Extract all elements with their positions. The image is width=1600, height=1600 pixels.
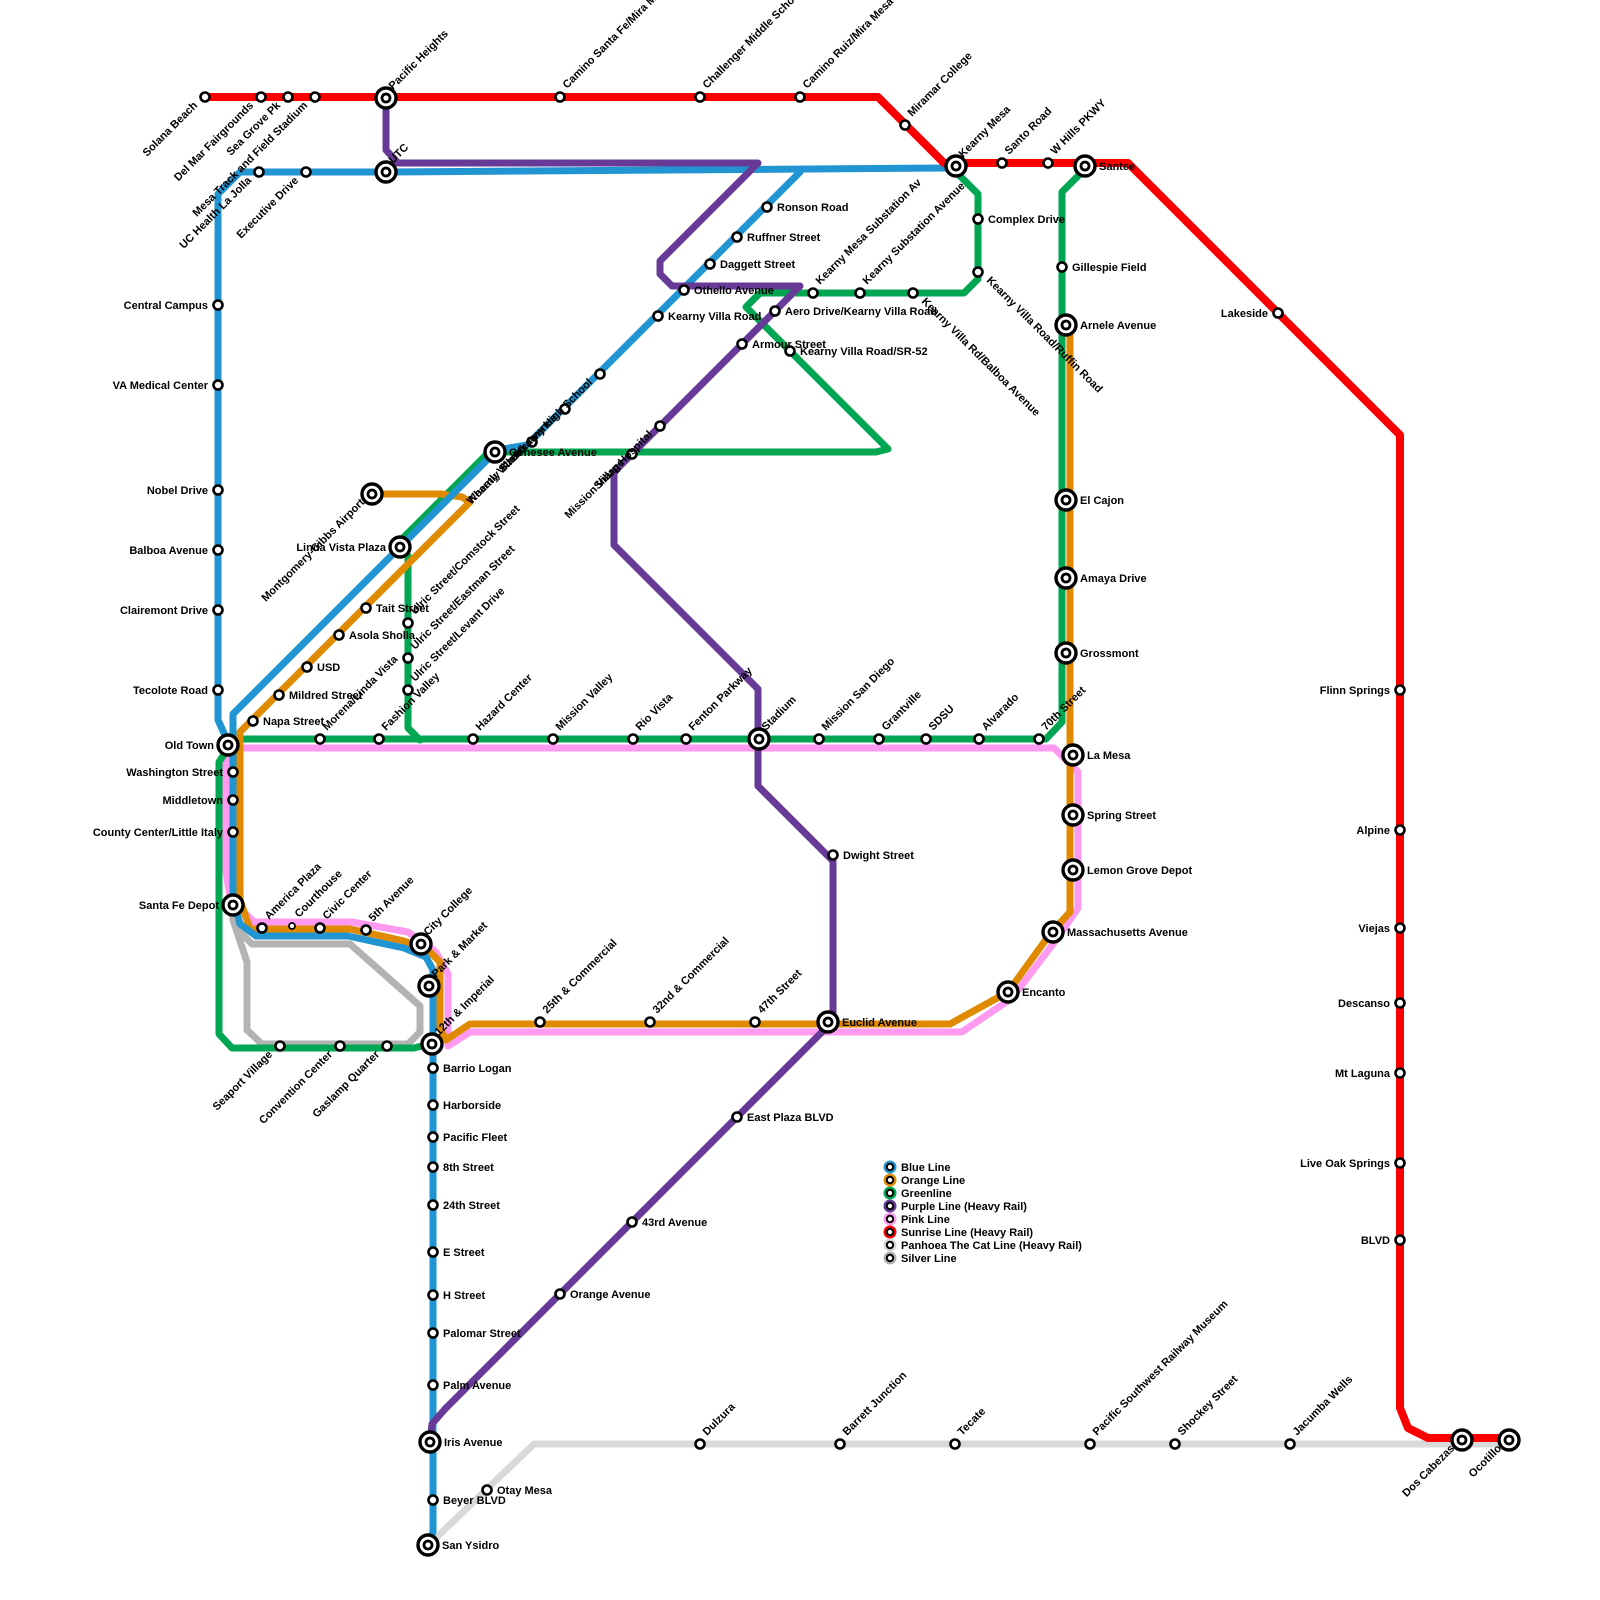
- station-marker-icon[interactable]: [738, 340, 747, 349]
- interchange-core-icon: [428, 1040, 436, 1048]
- station-marker-icon[interactable]: [429, 1133, 438, 1142]
- station-marker-icon[interactable]: [429, 1291, 438, 1300]
- station-47th-street[interactable]: [751, 1018, 760, 1027]
- station-nobel-drive[interactable]: [214, 486, 223, 495]
- station-marker-icon[interactable]: [829, 851, 838, 860]
- station-8th-street[interactable]: [429, 1163, 438, 1172]
- station-marker-icon[interactable]: [249, 717, 258, 726]
- station-marker-icon[interactable]: [201, 93, 210, 102]
- interchange-core-icon: [1458, 1436, 1466, 1444]
- station-marker-icon[interactable]: [922, 735, 931, 744]
- station-el-cajon[interactable]: [1056, 490, 1076, 510]
- station-label-h-street: H Street: [443, 1290, 486, 1302]
- station-marker-icon[interactable]: [429, 1163, 438, 1172]
- station-marker-icon[interactable]: [1396, 999, 1405, 1008]
- station-marker-icon[interactable]: [654, 312, 663, 321]
- station-central-campus[interactable]: [214, 301, 223, 310]
- station-middletown[interactable]: [229, 796, 238, 805]
- station-label-usd: USD: [317, 662, 340, 674]
- station-label-complex-drive: Complex Drive: [988, 214, 1065, 226]
- station-70th-street[interactable]: [1035, 735, 1044, 744]
- station-marker-icon[interactable]: [556, 1290, 565, 1299]
- station-marker-icon[interactable]: [751, 1018, 760, 1027]
- station-marker-icon[interactable]: [1035, 735, 1044, 744]
- station-label-challenger-middle-school: Challenger Middle School: [701, 0, 805, 91]
- station-label-lakeside: Lakeside: [1221, 308, 1268, 320]
- station-kearny-substation-avenue[interactable]: [856, 289, 865, 298]
- legend-label: Panhoea The Cat Line (Heavy Rail): [901, 1240, 1082, 1252]
- station-kearny-mesa-substation-av[interactable]: [809, 289, 818, 298]
- station-harborside[interactable]: [429, 1101, 438, 1110]
- legend-label: Orange Line: [901, 1175, 965, 1187]
- station-label-san-ysidro: San Ysidro: [442, 1540, 500, 1552]
- station-marker-icon[interactable]: [229, 796, 238, 805]
- station-marker-icon[interactable]: [1396, 1159, 1405, 1168]
- station-marker-icon[interactable]: [875, 735, 884, 744]
- station-lemon-grove-depot[interactable]: [1063, 860, 1083, 880]
- interchange-core-icon: [424, 1541, 432, 1549]
- station-marker-icon[interactable]: [596, 370, 605, 379]
- station-ruffner-street[interactable]: [733, 233, 742, 242]
- station-label-e-street: E Street: [443, 1247, 485, 1259]
- station-descanso[interactable]: [1396, 999, 1405, 1008]
- station-label-asola-sholla: Asola Sholla: [349, 630, 416, 642]
- station-marker-icon[interactable]: [257, 93, 266, 102]
- station-santee[interactable]: [1075, 156, 1095, 176]
- station-camino-santa-fe-mira-mesa-blvd[interactable]: [556, 93, 565, 102]
- station-mt-laguna[interactable]: [1396, 1069, 1405, 1078]
- green-line-main: [228, 172, 1082, 745]
- station-label-fenton-parkway: Fenton Parkway: [687, 664, 756, 733]
- station-marker-icon[interactable]: [362, 604, 371, 613]
- station-label-live-oak-springs: Live Oak Springs: [1300, 1158, 1390, 1170]
- station-marker-icon[interactable]: [429, 1248, 438, 1257]
- station-challenger-middle-school[interactable]: [696, 93, 705, 102]
- legend-item-blue-line: Blue Line: [884, 1161, 951, 1175]
- station-camino-ruiz-mira-mesa-blvd[interactable]: [796, 93, 805, 102]
- legend-station-icon: [887, 1203, 893, 1209]
- legend-station-icon: [887, 1177, 893, 1183]
- station-label-amaya-drive: Amaya Drive: [1080, 573, 1147, 585]
- station-washington-street[interactable]: [229, 768, 238, 777]
- station-marker-icon[interactable]: [656, 422, 665, 431]
- interchange-core-icon: [1062, 574, 1070, 582]
- interchange-core-icon: [1069, 751, 1077, 759]
- station-marker-icon[interactable]: [258, 924, 267, 933]
- station-mission-valley[interactable]: [549, 735, 558, 744]
- station-sea-grove-pk[interactable]: [284, 93, 293, 102]
- legend-label: Blue Line: [901, 1162, 951, 1174]
- station-amaya-drive[interactable]: [1056, 568, 1076, 588]
- station-kearny-villa-kearny-high-school[interactable]: [596, 370, 605, 379]
- station-morena-linda-vista[interactable]: [316, 735, 325, 744]
- station-daggett-street[interactable]: [706, 260, 715, 269]
- station-marker-icon[interactable]: [556, 93, 565, 102]
- station-marker-icon[interactable]: [646, 1018, 655, 1027]
- station-marker-icon[interactable]: [404, 654, 413, 663]
- station-e-street[interactable]: [429, 1248, 438, 1257]
- station-marker-icon[interactable]: [951, 1440, 960, 1449]
- station-marker-icon[interactable]: [214, 486, 223, 495]
- station-label-palomar-street: Palomar Street: [443, 1328, 521, 1340]
- station-blvd[interactable]: [1396, 1236, 1405, 1245]
- station-marker-icon[interactable]: [214, 301, 223, 310]
- station-marker-icon[interactable]: [1396, 826, 1405, 835]
- station-gillespie-field[interactable]: [1058, 263, 1067, 272]
- interchange-core-icon: [224, 741, 232, 749]
- station-label-32nd-commercial: 32nd & Commercial: [651, 935, 732, 1016]
- station-marker-icon[interactable]: [214, 606, 223, 615]
- station-genesee-avenue[interactable]: [485, 442, 505, 462]
- station-kearny-villa-road[interactable]: [654, 312, 663, 321]
- station-marker-icon[interactable]: [255, 168, 264, 177]
- interchange-core-icon: [425, 982, 433, 990]
- station-dos-cabezas[interactable]: [1452, 1430, 1472, 1450]
- station-w-hills-pkwy[interactable]: [1044, 159, 1053, 168]
- station-la-mesa[interactable]: [1063, 745, 1083, 765]
- station-santo-road[interactable]: [998, 159, 1007, 168]
- interchange-core-icon: [824, 1018, 832, 1026]
- station-marker-icon[interactable]: [316, 924, 325, 933]
- station-label-city-college: City College: [422, 885, 475, 938]
- station-balboa-avenue[interactable]: [214, 546, 223, 555]
- station-america-plaza[interactable]: [258, 924, 267, 933]
- station-barrett-junction[interactable]: [836, 1440, 845, 1449]
- station-marker-icon[interactable]: [909, 289, 918, 298]
- station-marker-icon[interactable]: [316, 735, 325, 744]
- station-label-mt-laguna: Mt Laguna: [1335, 1068, 1391, 1080]
- station-marker-icon[interactable]: [536, 1018, 545, 1027]
- station-label-santa-fe-depot: Santa Fe Depot: [139, 900, 219, 912]
- station-pacific-southwest-railway-museum[interactable]: [1086, 1440, 1095, 1449]
- station-tecolote-road[interactable]: [214, 686, 223, 695]
- station-marker-icon[interactable]: [771, 307, 780, 316]
- blue-line-south: [233, 745, 433, 1545]
- station-marker-icon[interactable]: [311, 93, 320, 102]
- interchange-core-icon: [1049, 928, 1057, 936]
- station-marker-icon[interactable]: [362, 926, 371, 935]
- station-label-stadium: Stadium: [760, 694, 799, 733]
- station-marker-icon[interactable]: [998, 159, 1007, 168]
- station-marker-icon[interactable]: [275, 691, 284, 700]
- station-marker-icon[interactable]: [429, 1496, 438, 1505]
- station-ulric-street-comstock-street[interactable]: [404, 619, 413, 628]
- station-label-mission-valley: Mission Valley: [554, 671, 616, 733]
- station-marker-icon[interactable]: [284, 93, 293, 102]
- station-convention-center[interactable]: [336, 1042, 345, 1051]
- station-fashion-valley[interactable]: [375, 735, 384, 744]
- station-marker-icon[interactable]: [214, 381, 223, 390]
- station-usd[interactable]: [303, 663, 312, 672]
- station-hazard-center[interactable]: [469, 735, 478, 744]
- station-mildred-street[interactable]: [275, 691, 284, 700]
- station-marker-icon[interactable]: [975, 735, 984, 744]
- station-shockey-street[interactable]: [1171, 1440, 1180, 1449]
- station-euclid-avenue[interactable]: [818, 1012, 838, 1032]
- interchange-core-icon: [426, 1438, 434, 1446]
- interchange-core-icon: [1062, 649, 1070, 657]
- station-label-viejas: Viejas: [1358, 923, 1390, 935]
- station-mesa-track-and-field-stadium[interactable]: [311, 93, 320, 102]
- station-label-pacific-southwest-railway-museum: Pacific Southwest Railway Museum: [1091, 1298, 1231, 1438]
- station-marker-icon[interactable]: [1286, 1440, 1295, 1449]
- station-viejas[interactable]: [1396, 924, 1405, 933]
- station-old-town[interactable]: [218, 735, 238, 755]
- station-kearny-villa-rd-balboa-avenue[interactable]: [909, 289, 918, 298]
- station-labels-layer: Solana BeachDel Mar FairgroundsSea Grove…: [93, 0, 1505, 1552]
- station-marker-icon[interactable]: [383, 1042, 392, 1051]
- station-label-camino-santa-fe-mira-mesa-blvd: Camino Santa Fe/Mira Mesa BLVD: [561, 0, 695, 91]
- station-label-el-cajon: El Cajon: [1080, 495, 1124, 507]
- station-marker-icon[interactable]: [229, 828, 238, 837]
- station-marker-icon[interactable]: [763, 203, 772, 212]
- station-label-otay-mesa: Otay Mesa: [497, 1485, 553, 1497]
- station-fenton-parkway[interactable]: [682, 735, 691, 744]
- station-sdsu[interactable]: [922, 735, 931, 744]
- station-marker-icon[interactable]: [1396, 686, 1405, 695]
- station-montgomery-gibbs-airport[interactable]: [362, 484, 382, 504]
- station-complex-drive[interactable]: [974, 215, 983, 224]
- station-executive-drive[interactable]: [302, 168, 311, 177]
- legend-label: Purple Line (Heavy Rail): [901, 1201, 1027, 1213]
- station-othello-avenue[interactable]: [680, 286, 689, 295]
- station-marker-icon[interactable]: [276, 1042, 285, 1051]
- station-marker-icon[interactable]: [214, 686, 223, 695]
- station-alvarado[interactable]: [975, 735, 984, 744]
- station-beyer-blvd[interactable]: [429, 1496, 438, 1505]
- station-marker-icon[interactable]: [696, 93, 705, 102]
- interchange-core-icon: [1505, 1436, 1513, 1444]
- station-civic-center[interactable]: [316, 924, 325, 933]
- station-marker-icon[interactable]: [335, 631, 344, 640]
- station-marker-icon[interactable]: [856, 289, 865, 298]
- station-marker-icon[interactable]: [974, 215, 983, 224]
- station-label-county-center-little-italy: County Center/Little Italy: [93, 827, 224, 839]
- legend-station-icon: [887, 1229, 893, 1235]
- interchange-core-icon: [382, 168, 390, 176]
- station-linda-vista-plaza[interactable]: [390, 537, 410, 557]
- station-marker-icon[interactable]: [809, 289, 818, 298]
- minor-station-marker-icon[interactable]: [289, 923, 295, 929]
- station-label-solana-beach: Solana Beach: [141, 99, 201, 159]
- station-gaslamp-quarter[interactable]: [383, 1042, 392, 1051]
- station-label-24th-street: 24th Street: [443, 1200, 500, 1212]
- station-alpine[interactable]: [1396, 826, 1405, 835]
- station-label-alvarado: Alvarado: [980, 691, 1022, 733]
- station-barrio-logan[interactable]: [429, 1064, 438, 1073]
- station-va-medical-center[interactable]: [214, 381, 223, 390]
- station-marker-icon[interactable]: [796, 93, 805, 102]
- station-label-old-town: Old Town: [165, 740, 215, 752]
- station-tecate[interactable]: [951, 1440, 960, 1449]
- station-marker-icon[interactable]: [706, 260, 715, 269]
- station-label-kearny-villa-road: Kearny Villa Road: [668, 311, 761, 323]
- station-marker-icon[interactable]: [469, 735, 478, 744]
- station-grantville[interactable]: [875, 735, 884, 744]
- blue-line-east: [390, 168, 948, 172]
- station-dwight-street[interactable]: [829, 851, 838, 860]
- station-lakeside[interactable]: [1274, 309, 1283, 318]
- station-grossmont[interactable]: [1056, 643, 1076, 663]
- station-label-grossmont: Grossmont: [1080, 648, 1139, 660]
- station-marker-icon[interactable]: [1086, 1440, 1095, 1449]
- station-marker-icon[interactable]: [229, 768, 238, 777]
- station-label-barrett-junction: Barrett Junction: [841, 1369, 910, 1438]
- station-palomar-street[interactable]: [429, 1329, 438, 1338]
- station-marker-icon[interactable]: [1396, 1069, 1405, 1078]
- legend-station-icon: [887, 1255, 893, 1261]
- station-marker-icon[interactable]: [549, 735, 558, 744]
- station-palm-avenue[interactable]: [429, 1381, 438, 1390]
- station-ronson-road[interactable]: [763, 203, 772, 212]
- station-32nd-commercial[interactable]: [646, 1018, 655, 1027]
- station-marker-icon[interactable]: [1396, 1236, 1405, 1245]
- legend-label: Sunrise Line (Heavy Rail): [901, 1227, 1033, 1239]
- station-tait-street[interactable]: [362, 604, 371, 613]
- station-marker-icon[interactable]: [302, 168, 311, 177]
- station-label-arnele-avenue: Arnele Avenue: [1080, 320, 1156, 332]
- station-label-harborside: Harborside: [443, 1100, 501, 1112]
- station-marker-icon[interactable]: [696, 1440, 705, 1449]
- station-uc-health-la-jolla[interactable]: [255, 168, 264, 177]
- station-marker-icon[interactable]: [429, 1381, 438, 1390]
- station-label-napa-street: Napa Street: [263, 716, 324, 728]
- interchange-core-icon: [491, 448, 499, 456]
- station-marker-icon[interactable]: [429, 1064, 438, 1073]
- legend-station-icon: [887, 1164, 893, 1170]
- station-label-washington-street: Washington Street: [126, 767, 223, 779]
- station-mission-san-diego[interactable]: [815, 735, 824, 744]
- station-kearny-villa-road-ruffin-road[interactable]: [974, 268, 983, 277]
- station-marker-icon[interactable]: [901, 121, 910, 130]
- sunrise-red-line: [205, 97, 1507, 1438]
- station-marker-icon[interactable]: [1171, 1440, 1180, 1449]
- station-solana-beach[interactable]: [201, 93, 210, 102]
- station-east-plaza-blvd[interactable]: [733, 1113, 742, 1122]
- legend-station-icon: [887, 1190, 893, 1196]
- station-label-armour-street: Armour Street: [752, 339, 826, 351]
- station-label-miramar-college: Miramar College: [906, 50, 975, 119]
- station-label-east-plaza-blvd: East Plaza BLVD: [747, 1112, 834, 1124]
- station-label-jacumba-wells: Jacumba Wells: [1291, 1374, 1356, 1439]
- station-massachusetts-avenue[interactable]: [1043, 922, 1063, 942]
- station-live-oak-springs[interactable]: [1396, 1159, 1405, 1168]
- station-marker-icon[interactable]: [815, 735, 824, 744]
- station-marker-icon[interactable]: [682, 735, 691, 744]
- station-napa-street[interactable]: [249, 717, 258, 726]
- station-sharp-hospital[interactable]: [656, 422, 665, 431]
- station-label-tecate: Tecate: [956, 1406, 989, 1439]
- station-marker-icon[interactable]: [429, 1201, 438, 1210]
- station-label-orange-avenue: Orange Avenue: [570, 1289, 651, 1301]
- station-label-ronson-road: Ronson Road: [777, 202, 849, 214]
- station-label-othello-avenue: Othello Avenue: [694, 285, 774, 297]
- station-clairemont-drive[interactable]: [214, 606, 223, 615]
- station-marker-icon[interactable]: [836, 1440, 845, 1449]
- station-marker-icon[interactable]: [974, 268, 983, 277]
- station-iris-avenue[interactable]: [420, 1432, 440, 1452]
- station-label-tecolote-road: Tecolote Road: [133, 685, 208, 697]
- station-marker-icon[interactable]: [1274, 309, 1283, 318]
- station-encanto[interactable]: [998, 982, 1018, 1002]
- station-aero-drive-kearny-villa-road[interactable]: [771, 307, 780, 316]
- station-marker-icon[interactable]: [733, 1113, 742, 1122]
- station-label-aero-drive-kearny-villa-road: Aero Drive/Kearny Villa Road: [785, 306, 937, 318]
- station-marker-icon[interactable]: [1058, 263, 1067, 272]
- station-label-encanto: Encanto: [1022, 987, 1066, 999]
- station-marker-icon[interactable]: [483, 1486, 492, 1495]
- station-flinn-springs[interactable]: [1396, 686, 1405, 695]
- station-armour-street[interactable]: [738, 340, 747, 349]
- station-county-center-little-italy[interactable]: [229, 828, 238, 837]
- station-arnele-avenue[interactable]: [1056, 315, 1076, 335]
- station-5th-avenue[interactable]: [362, 926, 371, 935]
- station-label-5th-avenue: 5th Avenue: [367, 874, 417, 924]
- interchange-core-icon: [368, 490, 376, 498]
- station-label-palm-avenue: Palm Avenue: [443, 1380, 511, 1392]
- station-marker-icon[interactable]: [336, 1042, 345, 1051]
- station-label-massachusetts-avenue: Massachusetts Avenue: [1067, 927, 1188, 939]
- station-label-kearny-substation-avenue: Kearny Substation Avenue: [861, 180, 968, 287]
- interchange-core-icon: [382, 94, 390, 102]
- interchange-core-icon: [1004, 988, 1012, 996]
- station-marker-icon[interactable]: [303, 663, 312, 672]
- station-orange-avenue[interactable]: [556, 1290, 565, 1299]
- station-label-rio-vista: Rio Vista: [634, 691, 676, 733]
- station-24th-street[interactable]: [429, 1201, 438, 1210]
- station-otay-mesa[interactable]: [483, 1486, 492, 1495]
- station-ulric-street-eastman-street[interactable]: [404, 654, 413, 663]
- station-label-dos-cabezas: Dos Cabezas: [1400, 1443, 1457, 1500]
- station-santa-fe-depot[interactable]: [223, 895, 243, 915]
- station-marker-icon[interactable]: [429, 1101, 438, 1110]
- station-marker-icon[interactable]: [733, 233, 742, 242]
- station-marker-icon[interactable]: [680, 286, 689, 295]
- station-spring-street[interactable]: [1063, 805, 1083, 825]
- station-miramar-college[interactable]: [901, 121, 910, 130]
- station-label-linda-vista-plaza: Linda Vista Plaza: [296, 542, 387, 554]
- station-jacumba-wells[interactable]: [1286, 1440, 1295, 1449]
- station-label-central-campus: Central Campus: [124, 300, 208, 312]
- station-courthouse[interactable]: [289, 923, 295, 929]
- station-label-25th-commercial: 25th & Commercial: [541, 937, 620, 1016]
- station-ocotillo[interactable]: [1499, 1430, 1519, 1450]
- station-25th-commercial[interactable]: [536, 1018, 545, 1027]
- station-43rd-avenue[interactable]: [628, 1218, 637, 1227]
- station-pacific-fleet[interactable]: [429, 1133, 438, 1142]
- station-rio-vista[interactable]: [629, 735, 638, 744]
- station-label-sdsu: SDSU: [927, 703, 957, 733]
- station-del-mar-fairgrounds[interactable]: [257, 93, 266, 102]
- station-marker-icon[interactable]: [375, 735, 384, 744]
- station-seaport-village[interactable]: [276, 1042, 285, 1051]
- station-label-seaport-village: Seaport Village: [211, 1049, 276, 1114]
- station-marker-icon[interactable]: [429, 1329, 438, 1338]
- station-label-8th-street: 8th Street: [443, 1162, 494, 1174]
- panhoea-line: [428, 1444, 1507, 1545]
- station-marker-icon[interactable]: [404, 619, 413, 628]
- station-asola-sholla[interactable]: [335, 631, 344, 640]
- blue-line-west: [218, 172, 386, 742]
- station-marker-icon[interactable]: [1396, 924, 1405, 933]
- station-marker-icon[interactable]: [628, 1218, 637, 1227]
- station-marker-icon[interactable]: [1044, 159, 1053, 168]
- station-dulzura[interactable]: [696, 1440, 705, 1449]
- station-marker-icon[interactable]: [214, 546, 223, 555]
- station-san-ysidro[interactable]: [418, 1535, 438, 1555]
- station-marker-icon[interactable]: [629, 735, 638, 744]
- station-h-street[interactable]: [429, 1291, 438, 1300]
